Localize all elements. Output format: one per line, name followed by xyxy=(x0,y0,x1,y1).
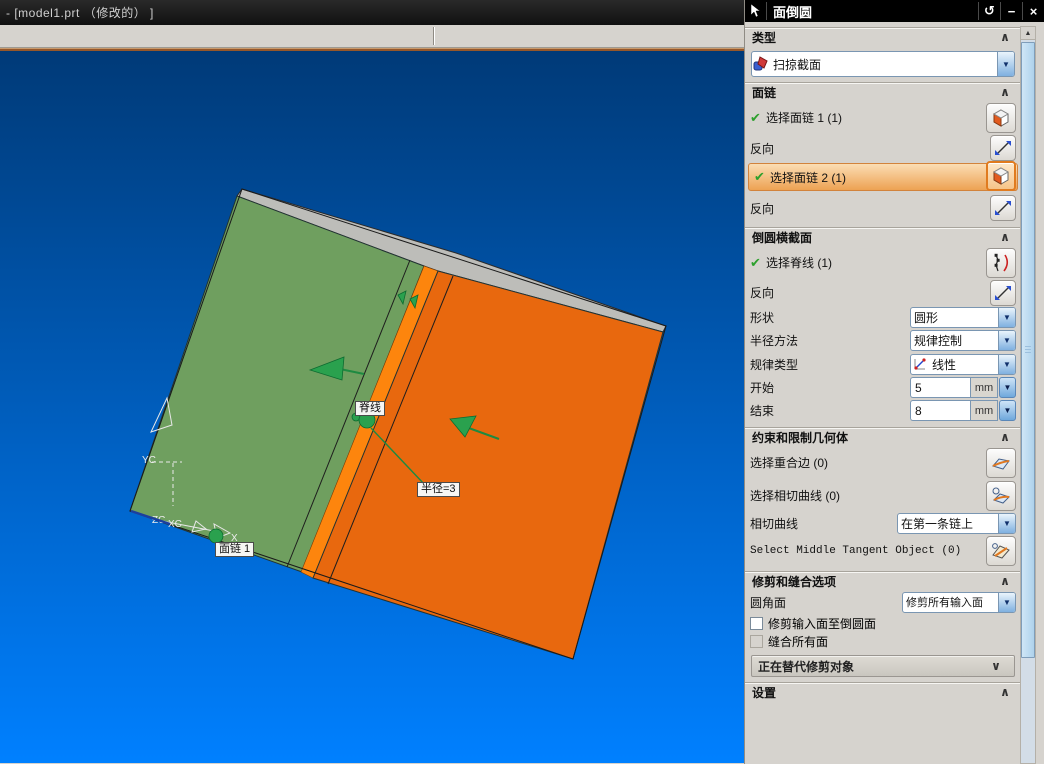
trim-input-faces-label: 修剪输入面至倒圆面 xyxy=(768,615,876,632)
reverse-direction-2-button[interactable] xyxy=(990,195,1016,221)
radius-method-dropdown[interactable]: 规律控制 ▼ xyxy=(910,330,1016,351)
reset-button[interactable]: ↺ xyxy=(978,2,1000,20)
start-unit: mm xyxy=(970,377,998,398)
start-radius-field[interactable]: 5 mm ▼ xyxy=(910,377,1016,398)
start-radius-row: 开始 5 mm ▼ xyxy=(745,376,1021,399)
reverse-2-row: 反向 xyxy=(745,194,1021,222)
end-radius-field[interactable]: 8 mm ▼ xyxy=(910,400,1016,421)
collapse-icon[interactable]: ∧ xyxy=(993,685,1017,699)
sew-all-faces-label: 缝合所有面 xyxy=(768,633,828,650)
fillet-face-dropdown[interactable]: 修剪所有输入面 ▼ xyxy=(902,592,1016,613)
section-type[interactable]: 类型 ∧ xyxy=(745,27,1021,46)
section-trim-sew[interactable]: 修剪和缝合选项 ∧ xyxy=(745,571,1021,590)
trim-input-faces-checkbox-row[interactable]: 修剪输入面至倒圆面 xyxy=(745,614,1021,632)
face-chain-2-button-anchor xyxy=(745,192,1021,194)
end-label: 结束 xyxy=(750,402,910,419)
coincident-edge-icon xyxy=(990,452,1012,474)
chevron-down-icon[interactable]: ▼ xyxy=(998,593,1015,612)
close-button[interactable]: × xyxy=(1022,2,1044,20)
expand-icon[interactable]: ∨ xyxy=(984,659,1008,673)
reverse-direction-icon xyxy=(994,284,1012,302)
select-face-chain-1-label: 选择面链 1 (1) xyxy=(766,109,986,126)
end-options-arrow[interactable]: ▼ xyxy=(999,400,1016,421)
toolbar-separator xyxy=(433,27,435,45)
coincident-edge-row[interactable]: 选择重合边 (0) xyxy=(745,446,1021,479)
select-face-chain-1-row[interactable]: ✔ 选择面链 1 (1) xyxy=(745,101,1021,134)
section-face-chain-title: 面链 xyxy=(752,84,993,101)
tangent-curves-dropdown[interactable]: 在第一条链上 ▼ xyxy=(897,513,1016,534)
collapse-icon[interactable]: ∧ xyxy=(993,430,1017,444)
cube-icon xyxy=(991,166,1011,186)
scroll-up-icon[interactable]: ▲ xyxy=(1021,27,1035,40)
coincident-edge-button[interactable] xyxy=(986,448,1016,478)
face-blend-dialog: 面倒圆 ↺ − × 类型 ∧ 扫掠截面 ▼ 面链 ∧ xyxy=(744,0,1044,764)
start-options-arrow[interactable]: ▼ xyxy=(999,377,1016,398)
override-trim-object-group[interactable]: 正在替代修剪对象 ∨ xyxy=(751,655,1015,677)
radius-annotation[interactable]: 半径=3 xyxy=(417,482,460,497)
scrollbar-thumb[interactable] xyxy=(1021,42,1035,658)
scrollbar-grip xyxy=(1025,346,1031,353)
chevron-down-icon[interactable]: ▼ xyxy=(997,52,1014,76)
section-type-title: 类型 xyxy=(752,29,993,46)
shape-dropdown[interactable]: 圆形 ▼ xyxy=(910,307,1016,328)
section-trim-sew-title: 修剪和缝合选项 xyxy=(752,573,993,590)
collapse-icon[interactable]: ∧ xyxy=(993,30,1017,44)
face-chain-2-button[interactable] xyxy=(986,161,1016,191)
select-face-chain-2-label: 选择面链 2 (1) xyxy=(770,169,1012,186)
face-chain-1-button[interactable] xyxy=(986,103,1016,133)
law-type-row: 规律类型 线性 ▼ xyxy=(745,352,1021,376)
law-type-value: 线性 xyxy=(929,356,998,373)
dialog-titlebar[interactable]: 面倒圆 ↺ − × xyxy=(745,0,1044,22)
middle-tangent-label: Select Middle Tangent Object (0) xyxy=(750,545,986,557)
fillet-face-value: 修剪所有输入面 xyxy=(903,594,998,610)
spine-select-button[interactable] xyxy=(986,248,1016,278)
start-value-input[interactable]: 5 xyxy=(910,377,970,398)
dialog-body: 类型 ∧ 扫掠截面 ▼ 面链 ∧ ✔ 选择面链 1 (1) xyxy=(745,22,1021,764)
fillet-face-label: 圆角面 xyxy=(750,594,902,611)
blend-type-icon xyxy=(752,56,770,72)
face-chain-handle xyxy=(209,529,223,543)
wcs-xc-label: XC xyxy=(168,519,182,530)
radius-method-row: 半径方法 规律控制 ▼ xyxy=(745,329,1021,352)
type-value: 扫掠截面 xyxy=(770,56,997,73)
section-constraints-title: 约束和限制几何体 xyxy=(752,429,993,446)
start-label: 开始 xyxy=(750,379,910,396)
middle-tangent-button[interactable] xyxy=(986,536,1016,566)
chevron-down-icon[interactable]: ▼ xyxy=(998,308,1015,327)
collapse-icon[interactable]: ∧ xyxy=(993,574,1017,588)
radius-method-value: 规律控制 xyxy=(911,332,998,349)
face-chain-annotation[interactable]: 面链 1 xyxy=(215,542,254,557)
select-spine-label: 选择脊线 (1) xyxy=(766,254,986,271)
section-settings-title: 设置 xyxy=(752,684,993,701)
check-icon: ✔ xyxy=(750,255,766,271)
reverse-spine-button[interactable] xyxy=(990,280,1016,306)
reverse-direction-icon xyxy=(994,139,1012,157)
tangent-curves-label: 选择相切曲线 (0) xyxy=(750,487,986,504)
shape-value: 圆形 xyxy=(911,309,998,326)
section-settings[interactable]: 设置 ∧ xyxy=(745,682,1021,701)
tangent-curves-button[interactable] xyxy=(986,481,1016,511)
checkbox-unchecked[interactable] xyxy=(750,617,763,630)
dialog-scrollbar[interactable]: ▲ xyxy=(1020,26,1036,764)
linear-law-icon xyxy=(911,357,929,371)
law-type-dropdown[interactable]: 线性 ▼ xyxy=(910,354,1016,375)
tangent-curves-row[interactable]: 选择相切曲线 (0) xyxy=(745,479,1021,512)
dialog-title: 面倒圆 xyxy=(767,2,978,21)
spine-annotation[interactable]: 脊线 xyxy=(355,401,385,416)
tangent-option-value: 在第一条链上 xyxy=(898,515,998,532)
drag-cursor-icon xyxy=(745,2,767,20)
section-cross-section[interactable]: 倒圆横截面 ∧ xyxy=(745,227,1021,246)
collapse-icon[interactable]: ∧ xyxy=(993,85,1017,99)
minimize-button[interactable]: − xyxy=(1000,2,1022,20)
type-dropdown[interactable]: 扫掠截面 ▼ xyxy=(751,51,1015,77)
reverse-2-label: 反向 xyxy=(750,200,990,217)
chevron-down-icon[interactable]: ▼ xyxy=(998,331,1015,350)
section-constraints[interactable]: 约束和限制几何体 ∧ xyxy=(745,427,1021,446)
cube-icon xyxy=(991,108,1011,128)
toolbar-strip xyxy=(0,25,744,48)
graphics-window: - [model1.prt （修改的） ] xyxy=(0,0,744,764)
middle-tangent-icon xyxy=(990,540,1012,562)
reverse-1-row: 反向 xyxy=(745,134,1021,162)
law-type-label: 规律类型 xyxy=(750,356,910,373)
section-cross-section-title: 倒圆横截面 xyxy=(752,229,993,246)
section-face-chain[interactable]: 面链 ∧ xyxy=(745,82,1021,101)
shape-row: 形状 圆形 ▼ xyxy=(745,306,1021,329)
reverse-1-label: 反向 xyxy=(750,140,990,157)
chevron-down-icon[interactable]: ▼ xyxy=(998,355,1015,374)
select-spine-row[interactable]: ✔ 选择脊线 (1) xyxy=(745,246,1021,279)
middle-tangent-row[interactable]: Select Middle Tangent Object (0) xyxy=(745,535,1021,566)
tangent-curves-icon xyxy=(990,485,1012,507)
spine-curve-icon xyxy=(990,252,1012,274)
override-trim-object-label: 正在替代修剪对象 xyxy=(758,658,984,675)
check-icon: ✔ xyxy=(750,110,766,126)
sew-all-faces-checkbox-row: 缝合所有面 xyxy=(745,632,1021,650)
tangent-option-label: 相切曲线 xyxy=(750,515,897,532)
radius-method-label: 半径方法 xyxy=(750,332,910,349)
reverse-direction-icon xyxy=(994,199,1012,217)
check-icon: ✔ xyxy=(754,169,770,185)
document-titlebar[interactable]: - [model1.prt （修改的） ] xyxy=(0,0,744,25)
shape-label: 形状 xyxy=(750,309,910,326)
app-window: - [model1.prt （修改的） ] xyxy=(0,0,1044,764)
document-title: - [model1.prt （修改的） ] xyxy=(6,4,154,21)
3d-viewport[interactable]: YC ZC XC X xyxy=(0,51,744,763)
select-face-chain-2-row[interactable]: ✔ 选择面链 2 (1) xyxy=(748,163,1018,191)
chevron-down-icon[interactable]: ▼ xyxy=(998,514,1015,533)
wcs-yc-label: YC xyxy=(142,455,156,466)
checkbox-disabled xyxy=(750,635,763,648)
reverse-direction-1-button[interactable] xyxy=(990,135,1016,161)
collapse-icon[interactable]: ∧ xyxy=(993,230,1017,244)
end-radius-row: 结束 8 mm ▼ xyxy=(745,399,1021,422)
reverse-spine-row: 反向 xyxy=(745,279,1021,306)
end-value-input[interactable]: 8 xyxy=(910,400,970,421)
fillet-face-row: 圆角面 修剪所有输入面 ▼ xyxy=(745,590,1021,614)
tangent-curves-option-row: 相切曲线 在第一条链上 ▼ xyxy=(745,512,1021,535)
coincident-edge-label: 选择重合边 (0) xyxy=(750,454,986,471)
reverse-spine-label: 反向 xyxy=(750,284,990,301)
end-unit: mm xyxy=(970,400,998,421)
